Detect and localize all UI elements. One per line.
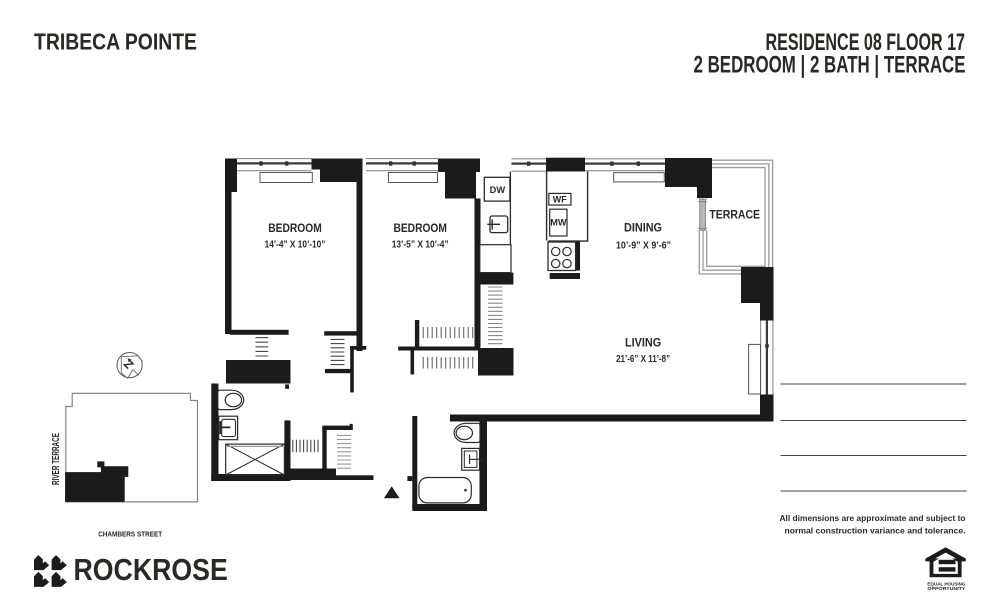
svg-text:normal construction variance a: normal construction variance and toleran… bbox=[785, 525, 966, 535]
svg-text:14’-4” X 10’-10”: 14’-4” X 10’-10” bbox=[265, 240, 326, 251]
svg-text:LIVING: LIVING bbox=[625, 336, 661, 349]
svg-text:2 BEDROOM | 2 BATH | TERRACE: 2 BEDROOM | 2 BATH | TERRACE bbox=[694, 52, 966, 79]
svg-text:All dimensions are approximate: All dimensions are approximate and subje… bbox=[780, 513, 966, 523]
svg-text:OPPORTUNITY: OPPORTUNITY bbox=[927, 586, 966, 592]
svg-text:DINING: DINING bbox=[624, 221, 662, 234]
svg-text:TRIBECA POINTE: TRIBECA POINTE bbox=[34, 29, 197, 55]
svg-text:10’-9” X 9’-6”: 10’-9” X 9’-6” bbox=[616, 240, 671, 251]
svg-text:BEDROOM: BEDROOM bbox=[393, 222, 447, 235]
svg-text:13’-5” X 10’-4”: 13’-5” X 10’-4” bbox=[392, 240, 449, 251]
svg-text:MW: MW bbox=[550, 218, 567, 228]
svg-text:ROCKROSE: ROCKROSE bbox=[74, 552, 228, 587]
svg-text:DW: DW bbox=[490, 185, 506, 195]
svg-text:BEDROOM: BEDROOM bbox=[268, 222, 322, 235]
svg-text:TERRACE: TERRACE bbox=[709, 209, 760, 222]
svg-text:21’-6” X 11’-8”: 21’-6” X 11’-8” bbox=[616, 354, 670, 365]
svg-text:WF: WF bbox=[553, 195, 567, 205]
svg-text:CHAMBERS STREET: CHAMBERS STREET bbox=[98, 529, 162, 538]
svg-text:RIVER TERRACE: RIVER TERRACE bbox=[51, 433, 62, 485]
